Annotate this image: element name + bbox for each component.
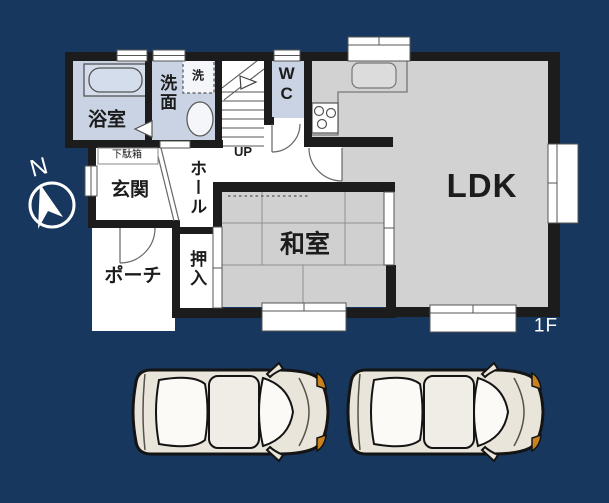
hall-label: ホール: [187, 160, 205, 217]
porch-label: ポーチ: [104, 267, 161, 288]
floor-label: 1F: [534, 317, 558, 338]
bathroom-label: 浴室: [88, 111, 126, 132]
car-icon-1: [133, 363, 328, 461]
bathtub-icon: [84, 64, 147, 96]
washroom-door-opening: [160, 141, 190, 148]
ldk-label: LDK: [447, 168, 518, 204]
stove-icon: [312, 103, 338, 133]
compass-icon: [30, 183, 74, 229]
shoe-cabinet-label: 下駄箱: [112, 151, 142, 162]
ldk-doorway: [302, 147, 342, 183]
car-icon-2: [348, 363, 543, 461]
sink-icon: [187, 102, 213, 136]
japanese-room-label: 和室: [280, 232, 330, 259]
floorplan-page: 浴室 洗面 洗 WC UP 下駄箱 玄関 ホール 和室 押入 ポーチ LDK 1…: [0, 0, 609, 503]
washer-label: 洗: [192, 70, 204, 83]
closet-label: 押入: [187, 250, 205, 288]
entrance-label: 玄関: [111, 181, 149, 202]
stairs-up-label: UP: [234, 145, 252, 159]
washroom-label: 洗面: [157, 74, 175, 112]
wc-label: WC: [277, 64, 295, 104]
